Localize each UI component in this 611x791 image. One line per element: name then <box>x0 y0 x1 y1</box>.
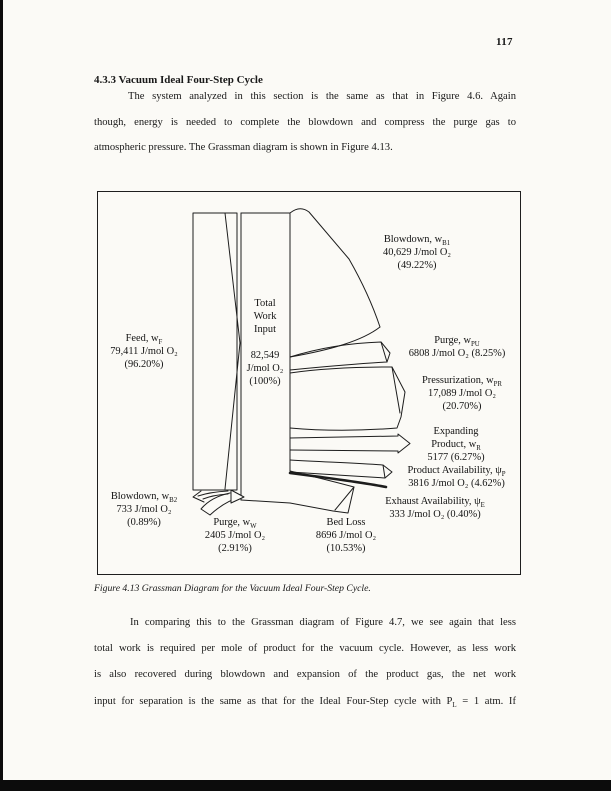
label-purge-w: Purge, wW 2405 J/mol O₂ (2.91%) <box>190 516 280 555</box>
label-pressurization: Pressurization, wPR 17,089 J/mol O₂ (20.… <box>404 374 520 413</box>
label-feed: Feed, wF 79,411 J/mol O₂ (96.20%) <box>100 332 188 371</box>
label-blowdown-b1: Blowdown, wB1 40,629 J/mol O₂ (49.22%) <box>360 233 474 272</box>
flow-expanding-product <box>290 434 410 453</box>
body-text-line: though, energy is needed to complete the… <box>94 116 516 131</box>
scan-edge-left <box>0 0 3 791</box>
section-heading: 4.3.3 Vacuum Ideal Four-Step Cycle <box>94 74 263 86</box>
body-text-line: The system analyzed in this section is t… <box>128 90 516 105</box>
body-text-line: total work is required per mole of produ… <box>94 642 516 657</box>
body-text-line: In comparing this to the Grassman diagra… <box>130 616 516 631</box>
body-text-line: atmospheric pressure. The Grassman diagr… <box>94 141 516 156</box>
label-blowdown-b2: Blowdown, wB2 733 J/mol O₂ (0.89%) <box>98 490 190 529</box>
figure-caption: Figure 4.13 Grassman Diagram for the Vac… <box>94 583 371 594</box>
label-total-work-input: Total Work Input <box>237 297 293 336</box>
flow-pressurization <box>290 367 405 430</box>
grassman-diagram-figure: Feed, wF 79,411 J/mol O₂ (96.20%) Total … <box>97 191 521 575</box>
label-expanding-product: Expanding Product, wR 5177 (6.27%) <box>409 425 503 464</box>
label-product-availability: Product Availability, ψP 3816 J/mol O₂ (… <box>392 464 521 490</box>
flow-blowdown-b1 <box>290 209 380 357</box>
body-text-line: is also recovered during blowdown and ex… <box>94 668 516 683</box>
flow-purge-pu <box>290 342 390 370</box>
scan-edge-bottom <box>0 780 611 791</box>
junction-arrow-icon <box>231 490 244 503</box>
body-text-line: input for separation is the same as that… <box>94 695 516 710</box>
label-total-work-value: 82,549 J/mol O₂ (100%) <box>233 349 297 388</box>
label-purge-pu: Purge, wPU 6808 J/mol O₂ (8.25%) <box>397 334 517 360</box>
label-bed-loss: Bed Loss 8696 J/mol O₂ (10.53%) <box>303 516 389 555</box>
page-number: 117 <box>496 36 513 48</box>
